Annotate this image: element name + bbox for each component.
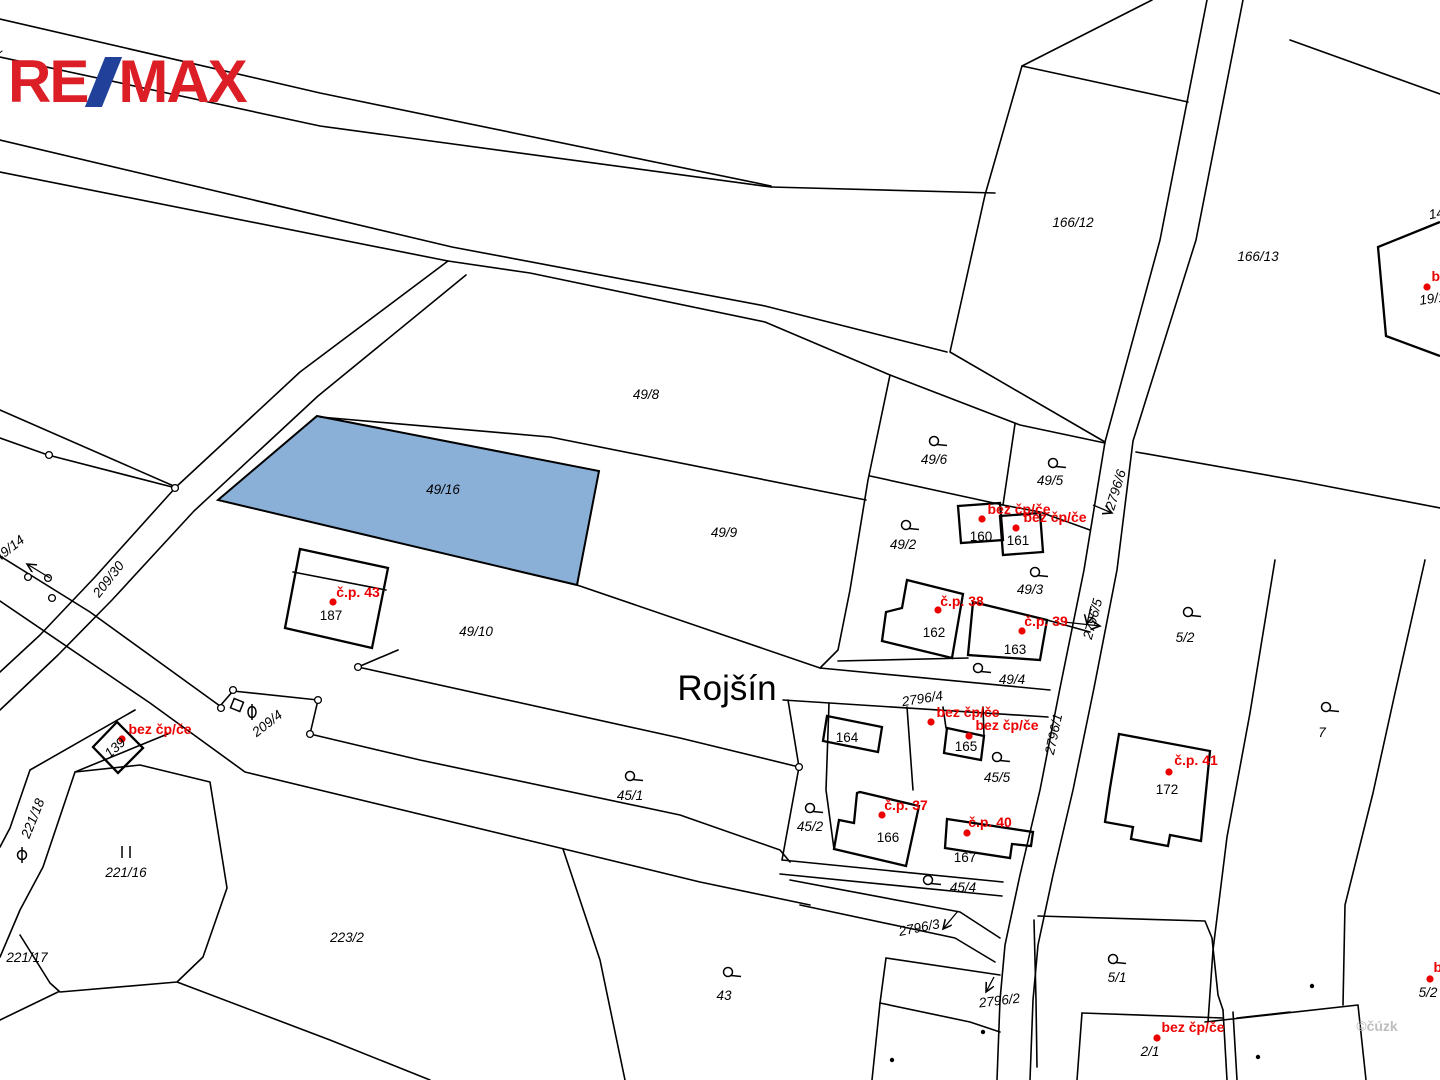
building-descriptor-label: č.p. 39	[1024, 613, 1068, 629]
garden-symbol-icon	[1031, 568, 1049, 577]
point-marker	[1310, 984, 1314, 988]
remax-logo: RE MAX	[8, 52, 246, 112]
parcel-number-label: 2/1	[1140, 1044, 1160, 1059]
parcel-number-label: 49/14	[0, 532, 27, 565]
building-definition-point	[1426, 975, 1433, 982]
garden-symbol-icon	[1322, 703, 1340, 712]
cadastral-map: 52166/12166/131419/149/849/649/52796/649…	[0, 0, 1440, 1080]
parcel-number-label: 2796/3	[896, 916, 941, 939]
building-descriptor-label: bez čp/če	[128, 721, 191, 737]
parcel-number-label: 167	[954, 850, 977, 865]
building-descriptor-label: č.p. 40	[968, 814, 1012, 830]
garden-symbol-icon	[930, 437, 948, 446]
parcel-number-label: 19/1	[1418, 289, 1440, 308]
parcel-number-label: 5/1	[1108, 970, 1127, 985]
parcel-number-label: 49/16	[426, 482, 460, 497]
parcel-number-label: 49/2	[890, 537, 917, 552]
building-definition-point	[963, 829, 970, 836]
parcel-number-label: 209/30	[89, 558, 127, 601]
parcel-number-label: 221/17	[5, 950, 48, 965]
parcel-number-label: 221/16	[104, 865, 147, 880]
parcel-boundaries	[0, 0, 1440, 1080]
parcel-number-label: 160	[970, 529, 993, 544]
theta-symbol-icon	[248, 704, 256, 720]
garden-symbol-icon	[724, 968, 742, 977]
parcel-number-label: 5/2	[1176, 630, 1195, 645]
parcel-number-label: 49/5	[1037, 473, 1064, 488]
double-bar-symbol-icon	[122, 846, 130, 858]
parcel-number-label: 2796/2	[977, 991, 1021, 1011]
parcel-number-label: 49/8	[633, 387, 660, 402]
building-descriptor-label: č.p. 41	[1174, 752, 1218, 768]
boundary-point-icon	[796, 764, 803, 771]
parcel-number-label: 45/5	[984, 770, 1011, 785]
point-marker	[890, 1058, 894, 1062]
building-descriptor-label: č.p. 38	[940, 593, 984, 609]
parcel-number-label: 166/12	[1052, 215, 1094, 230]
building-definition-point	[1165, 768, 1172, 775]
garden-symbol-icon	[1184, 608, 1202, 617]
parcel-number-label: 45/1	[617, 788, 643, 803]
building-descriptor-label: bez čp/če	[1161, 1019, 1224, 1035]
boundary-point-icon	[307, 731, 314, 738]
building-definition-point	[1423, 283, 1430, 290]
building-descriptor-label: č.p. 43	[336, 584, 380, 600]
garden-symbol-icon	[806, 804, 824, 813]
parcel-number-label: 7	[1318, 725, 1326, 740]
parcel-number-label: 5/2	[1419, 985, 1438, 1000]
garden-symbol-icon	[626, 772, 644, 781]
garden-symbol-icon	[993, 753, 1011, 762]
garden-symbol-icon	[902, 521, 920, 530]
parcel-labels: 52166/12166/131419/149/849/649/52796/649…	[0, 41, 1440, 1059]
parcel-number-label: 166	[877, 830, 900, 845]
reference-arrow-icon	[986, 977, 994, 992]
phi-symbol-icon	[18, 847, 27, 863]
square-symbol-icon	[230, 698, 243, 711]
place-name-label: Rojšín	[677, 669, 776, 708]
boundary-point-icon	[230, 687, 237, 694]
parcel-number-label: 163	[1004, 642, 1027, 657]
point-marker	[1256, 1055, 1260, 1059]
boundary-point-icon	[355, 664, 362, 671]
parcel-number-label: 187	[320, 608, 343, 623]
parcel-number-label: 161	[1007, 533, 1030, 548]
cuzk-watermark: ©čúzk	[1356, 1018, 1398, 1034]
building-definition-point	[978, 515, 985, 522]
garden-symbol-icon	[1049, 459, 1067, 468]
building-definition-point	[1012, 524, 1019, 531]
parcel-number-label: 49/3	[1017, 582, 1044, 597]
point-marker	[981, 1030, 985, 1034]
parcel-number-label: 45/4	[950, 880, 976, 895]
parcel-number-label: 223/2	[329, 930, 364, 945]
building-descriptor-label: bez čp/če	[1023, 509, 1086, 525]
parcel-number-label: 162	[923, 625, 946, 640]
remax-logo-re: RE	[8, 52, 87, 112]
buildings	[93, 222, 1440, 866]
reference-arrow-icon	[943, 911, 958, 929]
parcel-number-label: 2796/1	[1042, 712, 1065, 756]
boundary-point-icon	[49, 595, 56, 602]
remax-logo-slash-icon	[85, 57, 122, 107]
parcel-number-label: 49/10	[459, 624, 493, 639]
boundary-point-icon	[172, 485, 179, 492]
boundary-point-icon	[218, 705, 225, 712]
garden-symbol-icon	[1109, 955, 1127, 964]
parcel-number-label: 49/9	[711, 525, 738, 540]
parcel-number-label: 45/2	[797, 819, 824, 834]
parcel-number-label: 166/13	[1237, 249, 1279, 264]
parcel-number-label: 165	[955, 739, 978, 754]
building-descriptor-label: bez čp/če	[1431, 268, 1440, 284]
building-descriptor-label: bez čp/če	[975, 717, 1038, 733]
boundary-point-icon	[25, 574, 32, 581]
parcel-number-label: 172	[1156, 782, 1179, 797]
building-descriptor-label: č.p. 37	[884, 797, 928, 813]
garden-symbol-icon	[924, 876, 942, 885]
building-descriptor-label: bez čp/če	[1433, 959, 1440, 975]
boundary-point-icon	[315, 697, 322, 704]
highlighted-parcel-49-16[interactable]	[218, 416, 599, 585]
parcel-number-label: 209/4	[249, 707, 286, 740]
parcel-number-label: 49/4	[999, 672, 1025, 687]
building-definition-point	[927, 718, 934, 725]
garden-symbol-icon	[974, 664, 992, 673]
parcel-number-label: 14	[1428, 205, 1440, 222]
cadastral-map-page: 52166/12166/131419/149/849/649/52796/649…	[0, 0, 1440, 1080]
parcel-number-label: 221/18	[18, 796, 48, 841]
parcel-number-label: 43	[716, 988, 732, 1003]
boundary-point-icon	[46, 452, 53, 459]
parcel-number-label: 2796/5	[1080, 596, 1106, 641]
parcel-number-label: 49/6	[921, 452, 948, 467]
building-definition-point	[1153, 1034, 1160, 1041]
remax-logo-max: MAX	[118, 52, 245, 112]
parcel-number-label: 164	[836, 730, 859, 745]
